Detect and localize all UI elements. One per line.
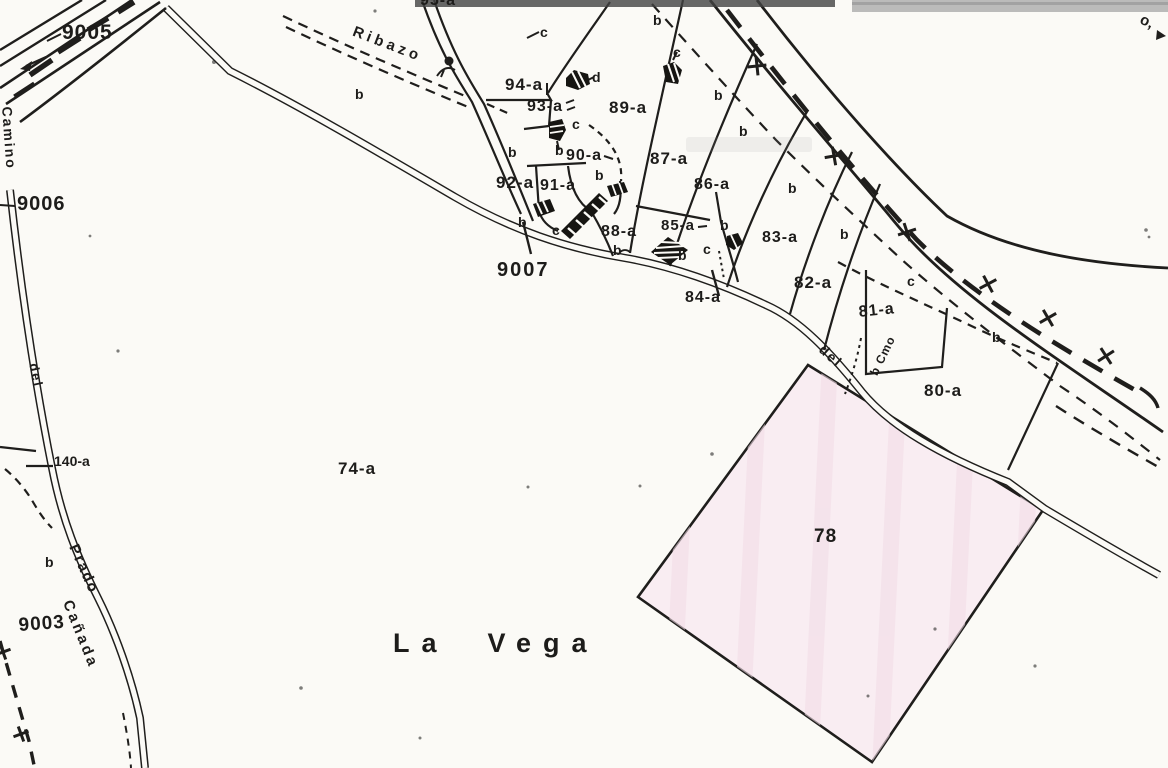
- boundary-corridor: [710, 0, 1168, 468]
- map-linework: [0, 0, 1168, 768]
- parcel-78-polygon: [638, 360, 1043, 768]
- left-road-camino-del-prado: [10, 190, 145, 768]
- cadastral-map-scan: 900590069007900395-a94-a93-a92-a91-a90-a…: [0, 0, 1168, 768]
- tree-symbol: [437, 57, 455, 78]
- scanner-artifacts: [89, 0, 1168, 740]
- edge-arrow-mark: [1156, 30, 1166, 40]
- top-left-track-band: [0, 0, 166, 206]
- bottom-left-boundary: [0, 641, 34, 765]
